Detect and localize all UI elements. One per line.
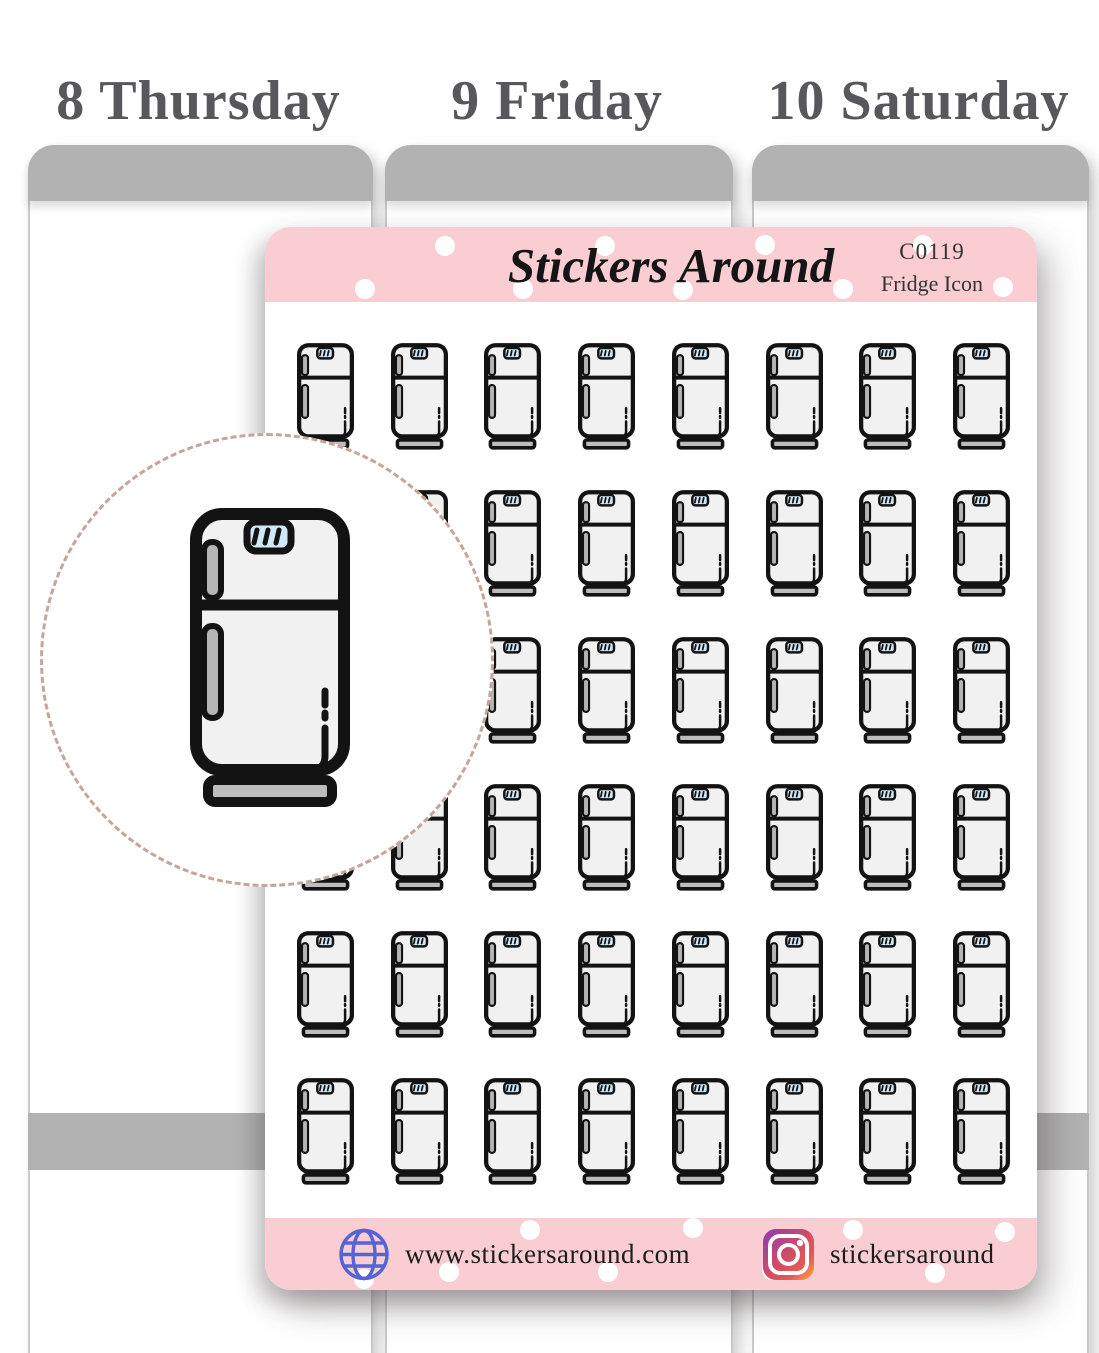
day-header-saturday: 10 Saturday (752, 70, 1085, 132)
fridge-icon (672, 343, 729, 450)
fridge-sticker (859, 1078, 916, 1185)
fridge-icon (578, 784, 635, 891)
zoom-preview-circle (40, 433, 494, 887)
polka-dot (355, 279, 375, 299)
fridge-icon (953, 931, 1010, 1038)
fridge-icon (578, 1078, 635, 1185)
fridge-icon (766, 343, 823, 450)
fridge-sticker (672, 343, 729, 450)
fridge-icon (766, 931, 823, 1038)
fridge-sticker (297, 931, 354, 1038)
fridge-sticker (766, 784, 823, 891)
planner-column-header (385, 145, 733, 201)
fridge-sticker (953, 637, 1010, 744)
fridge-sticker (297, 343, 354, 450)
fridge-sticker (391, 1078, 448, 1185)
fridge-icon (859, 637, 916, 744)
fridge-icon (484, 1078, 541, 1185)
fridge-icon (953, 343, 1010, 450)
fridge-sticker (859, 490, 916, 597)
fridge-icon (766, 490, 823, 597)
fridge-sticker (953, 343, 1010, 450)
fridge-icon (297, 343, 354, 450)
brand-title: Stickers Around (508, 237, 834, 294)
fridge-icon (953, 784, 1010, 891)
fridge-sticker (672, 784, 729, 891)
globe-icon (338, 1228, 390, 1281)
fridge-sticker (484, 490, 541, 597)
fridge-sticker (484, 931, 541, 1038)
fridge-icon (391, 343, 448, 450)
fridge-icon (859, 931, 916, 1038)
fridge-sticker (484, 1078, 541, 1185)
fridge-icon (766, 1078, 823, 1185)
fridge-sticker (953, 490, 1010, 597)
polka-dot (833, 279, 853, 299)
instagram-icon (762, 1228, 815, 1281)
website-url: www.stickersaround.com (405, 1239, 690, 1270)
fridge-icon (859, 784, 916, 891)
fridge-sticker (859, 343, 916, 450)
fridge-sticker (953, 784, 1010, 891)
fridge-icon (578, 637, 635, 744)
website-row: www.stickersaround.com (338, 1224, 690, 1284)
fridge-icon (190, 508, 350, 808)
fridge-icon (766, 637, 823, 744)
fridge-icon (484, 784, 541, 891)
sku-code: C0119 (867, 236, 997, 268)
polka-dot (995, 1222, 1015, 1242)
fridge-sticker (391, 343, 448, 450)
fridge-icon (484, 343, 541, 450)
fridge-sticker (859, 637, 916, 744)
fridge-sticker (859, 931, 916, 1038)
fridge-icon (484, 931, 541, 1038)
fridge-icon (859, 490, 916, 597)
planner-column-header (28, 145, 373, 201)
fridge-icon (953, 637, 1010, 744)
fridge-icon (391, 931, 448, 1038)
product-image: 8 Thursday 9 Friday 10 Saturday Stickers… (0, 0, 1099, 1353)
polka-dot (435, 236, 455, 256)
fridge-sticker (578, 490, 635, 597)
fridge-icon (297, 1078, 354, 1185)
fridge-icon (672, 1078, 729, 1185)
fridge-icon (672, 637, 729, 744)
fridge-icon (297, 931, 354, 1038)
fridge-sticker (391, 931, 448, 1038)
product-name: Fridge Icon (867, 268, 997, 300)
fridge-icon (859, 343, 916, 450)
fridge-sticker (484, 343, 541, 450)
fridge-sticker (766, 637, 823, 744)
fridge-icon (766, 784, 823, 891)
fridge-icon (672, 784, 729, 891)
fridge-icon (953, 1078, 1010, 1185)
day-header-friday: 9 Friday (385, 70, 729, 132)
fridge-icon (672, 490, 729, 597)
fridge-sticker (578, 931, 635, 1038)
fridge-sticker (484, 784, 541, 891)
fridge-sticker (672, 490, 729, 597)
fridge-sticker (578, 637, 635, 744)
fridge-icon (578, 931, 635, 1038)
fridge-sticker (766, 490, 823, 597)
fridge-icon (578, 343, 635, 450)
fridge-sticker (766, 1078, 823, 1185)
fridge-icon (672, 931, 729, 1038)
fridge-sticker (672, 1078, 729, 1185)
fridge-icon-large (190, 508, 350, 808)
fridge-sticker (672, 637, 729, 744)
planner-column-header (752, 145, 1089, 201)
instagram-handle: stickersaround (830, 1239, 994, 1270)
fridge-sticker (578, 1078, 635, 1185)
fridge-sticker (953, 1078, 1010, 1185)
fridge-sticker (953, 931, 1010, 1038)
fridge-icon (484, 490, 541, 597)
sku-block: C0119 Fridge Icon (867, 236, 997, 300)
fridge-icon (953, 490, 1010, 597)
fridge-icon (859, 1078, 916, 1185)
fridge-sticker (672, 931, 729, 1038)
fridge-sticker (766, 343, 823, 450)
fridge-sticker (859, 784, 916, 891)
instagram-row: stickersaround (762, 1224, 994, 1284)
fridge-icon (391, 1078, 448, 1185)
fridge-sticker (578, 784, 635, 891)
fridge-sticker (766, 931, 823, 1038)
fridge-sticker (578, 343, 635, 450)
day-header-thursday: 8 Thursday (28, 70, 369, 132)
fridge-icon (578, 490, 635, 597)
fridge-sticker (297, 1078, 354, 1185)
